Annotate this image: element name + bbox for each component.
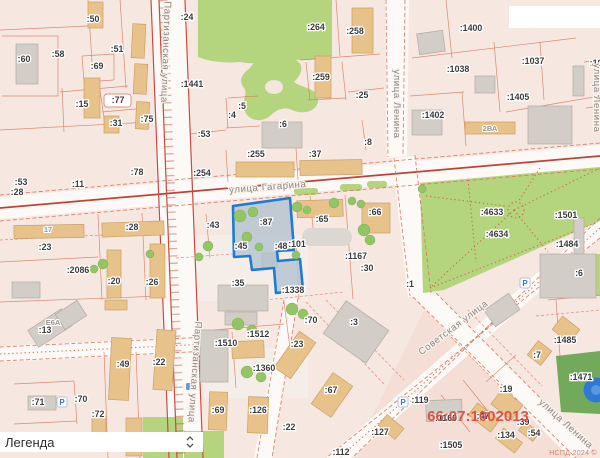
street-label: улица Ленина bbox=[391, 69, 402, 138]
parcel-label[interactable]: :58 bbox=[52, 49, 65, 59]
tree bbox=[232, 318, 244, 330]
parcel-label[interactable]: :69 bbox=[212, 405, 225, 415]
tree bbox=[146, 250, 154, 258]
parcel-label[interactable]: :43 bbox=[207, 220, 220, 230]
tree bbox=[98, 259, 108, 269]
parcel-label[interactable]: :1510 bbox=[215, 338, 238, 348]
parcel-label[interactable]: :23 bbox=[291, 339, 304, 349]
street-label: улица Ленина bbox=[591, 63, 600, 132]
parcel-label[interactable]: :53 bbox=[15, 177, 28, 187]
building bbox=[218, 285, 268, 311]
parcel-label[interactable]: :4634 bbox=[486, 229, 509, 239]
building bbox=[107, 250, 121, 298]
building bbox=[236, 162, 294, 177]
tree bbox=[286, 303, 298, 315]
parcel-label[interactable]: :1512 bbox=[247, 329, 270, 339]
parcel-label[interactable]: :1167 bbox=[345, 251, 367, 261]
map-popup-blank bbox=[509, 6, 600, 28]
building bbox=[84, 78, 100, 118]
parcel-label[interactable]: :50 bbox=[87, 14, 100, 24]
parcel-label[interactable]: :112 bbox=[332, 447, 349, 457]
parcel-label[interactable]: :6 bbox=[575, 268, 583, 278]
building bbox=[12, 282, 40, 298]
tree bbox=[203, 241, 213, 251]
building bbox=[417, 30, 446, 54]
pond-garden-hole bbox=[265, 80, 283, 94]
parcel-label[interactable]: :258 bbox=[346, 26, 364, 36]
tree bbox=[241, 366, 253, 378]
cadastral-quarter-label[interactable]: 66:07:1002013 bbox=[427, 408, 529, 425]
parcel-label[interactable]: :51 bbox=[111, 44, 124, 54]
parcel-label[interactable]: :5 bbox=[238, 101, 246, 111]
parcel-label[interactable]: :70 bbox=[75, 394, 88, 404]
parcel-label[interactable]: :1038 bbox=[447, 64, 470, 74]
parcel-label[interactable]: :77 bbox=[112, 95, 125, 105]
map-stage: РРР :50:60:58:69:51:24:1441:15:77:31:75:… bbox=[0, 0, 600, 458]
parcel-label[interactable]: :22 bbox=[153, 357, 166, 367]
parcel-label[interactable]: :2086 bbox=[67, 265, 90, 275]
parcel-label[interactable]: :26 bbox=[146, 277, 159, 287]
parcel-label[interactable]: :259 bbox=[312, 72, 330, 82]
tree bbox=[292, 251, 300, 259]
parcel-label[interactable]: :126 bbox=[249, 405, 267, 415]
parcel-label[interactable]: :28 bbox=[126, 222, 139, 232]
parcel-label[interactable]: :119 bbox=[411, 395, 428, 405]
parcel-label[interactable]: :1471 bbox=[570, 372, 593, 382]
parcel-label[interactable]: :22 bbox=[283, 422, 296, 432]
parcel-label[interactable]: :1400 bbox=[460, 23, 483, 33]
parcel-label[interactable]: :1485 bbox=[554, 335, 577, 345]
parking-icon-letter: Р bbox=[400, 398, 406, 407]
parcel-label[interactable]: :45 bbox=[235, 241, 248, 251]
legend-bar[interactable]: Легенда bbox=[0, 432, 203, 452]
building-label: 2ВА bbox=[483, 124, 498, 133]
parcel-label[interactable]: :101 bbox=[288, 239, 306, 249]
parcel-label[interactable]: :24 bbox=[181, 12, 194, 22]
building bbox=[475, 76, 495, 93]
parcel-label[interactable]: :30 bbox=[361, 263, 374, 273]
parcel-label[interactable]: :78 bbox=[131, 167, 144, 177]
building bbox=[108, 338, 131, 401]
tree bbox=[303, 206, 311, 214]
parcel-label[interactable]: :23 bbox=[39, 242, 52, 252]
parcel-label[interactable]: :28 bbox=[11, 187, 24, 197]
building-label: Е6А bbox=[46, 318, 61, 327]
parcel-label[interactable]: :67 bbox=[325, 385, 338, 395]
parcel-label[interactable]: :20 bbox=[108, 276, 121, 286]
parcel-label[interactable]: :11 bbox=[72, 179, 84, 189]
building bbox=[131, 24, 146, 59]
parcel-label[interactable]: :6 bbox=[279, 119, 287, 129]
parcel-label[interactable]: :7 bbox=[533, 350, 541, 360]
parcel-label[interactable]: :134 bbox=[497, 430, 515, 440]
tree bbox=[418, 185, 426, 193]
tree bbox=[329, 198, 339, 208]
tree bbox=[357, 200, 365, 208]
parcel-label[interactable]: :53 bbox=[198, 129, 211, 139]
parcel-label[interactable]: :37 bbox=[309, 149, 322, 159]
parcel-label[interactable]: :35 bbox=[232, 278, 245, 288]
parcel-label[interactable]: :48 bbox=[275, 241, 288, 251]
legend-toggle-icon[interactable] bbox=[185, 435, 195, 449]
parcel-label[interactable]: :1037 bbox=[522, 56, 545, 66]
parcel-label[interactable]: :4 bbox=[228, 110, 236, 120]
parcel-label[interactable]: :1484 bbox=[556, 239, 579, 249]
building bbox=[540, 254, 596, 298]
building bbox=[16, 44, 38, 84]
parcel-label[interactable]: :69 bbox=[91, 61, 104, 71]
parking-icon-letter: Р bbox=[522, 279, 528, 288]
parking-icon-letter: Р bbox=[59, 398, 65, 407]
legend-title: Легенда bbox=[5, 435, 54, 450]
building bbox=[300, 159, 362, 175]
building bbox=[528, 106, 572, 144]
parcel-label[interactable]: :19 bbox=[500, 384, 513, 394]
parcel-label[interactable]: :31 bbox=[110, 118, 123, 128]
parcel-label[interactable]: :1402 bbox=[422, 110, 445, 120]
nspd-watermark: НСПД 2024 © bbox=[549, 450, 597, 457]
parcel-label[interactable]: :1441 bbox=[181, 79, 204, 89]
parcel-label[interactable]: :1505 bbox=[440, 440, 463, 450]
parcel-label[interactable]: :3 bbox=[350, 317, 358, 327]
parcel-label[interactable]: :264 bbox=[307, 22, 325, 32]
building bbox=[573, 66, 584, 96]
parcel-label[interactable]: :255 bbox=[247, 149, 265, 159]
building-label: 17 bbox=[44, 225, 52, 234]
parcel-label[interactable]: :4633 bbox=[481, 207, 504, 217]
parcel-label[interactable]: :1501 bbox=[555, 210, 578, 220]
parcel-label[interactable]: :127 bbox=[371, 427, 389, 437]
tree bbox=[248, 207, 258, 217]
parcel-label[interactable]: :8 bbox=[364, 137, 372, 147]
parcel-label[interactable]: :49 bbox=[117, 359, 130, 369]
parcel-label[interactable]: :15 bbox=[76, 99, 89, 109]
parcel-label[interactable]: :1338 bbox=[282, 285, 305, 295]
parcel-label[interactable]: :1360 bbox=[253, 363, 276, 373]
map-canvas[interactable]: РРР :50:60:58:69:51:24:1441:15:77:31:75:… bbox=[0, 0, 600, 458]
tree bbox=[255, 243, 263, 251]
building bbox=[247, 397, 268, 434]
tree bbox=[292, 202, 302, 212]
parcel-label[interactable]: :72 bbox=[92, 409, 105, 419]
building bbox=[105, 300, 127, 310]
parcel-label[interactable]: :65 bbox=[316, 214, 329, 224]
parcel-label[interactable]: :54 bbox=[528, 428, 541, 438]
tree bbox=[90, 265, 98, 273]
building bbox=[133, 64, 148, 95]
tree bbox=[365, 235, 375, 245]
tree bbox=[358, 224, 370, 236]
parcel-label[interactable]: :70 bbox=[305, 315, 318, 325]
parcel-label[interactable]: :87 bbox=[260, 217, 273, 227]
tree bbox=[234, 210, 246, 222]
parcel-label[interactable]: :1405 bbox=[507, 92, 530, 102]
parcel-label[interactable]: :25 bbox=[356, 90, 369, 100]
parcel-label[interactable]: :75 bbox=[141, 114, 154, 124]
parcel-label[interactable]: :254 bbox=[193, 168, 211, 178]
parcel-label[interactable]: :60 bbox=[18, 54, 31, 64]
parcel-label[interactable]: :71 bbox=[32, 397, 45, 407]
tree bbox=[256, 372, 266, 382]
tree bbox=[348, 197, 356, 205]
parcel-label[interactable]: :1 bbox=[406, 279, 414, 289]
driveway-loop bbox=[302, 228, 352, 246]
parcel-label[interactable]: :66 bbox=[369, 207, 382, 217]
tree bbox=[195, 253, 203, 261]
